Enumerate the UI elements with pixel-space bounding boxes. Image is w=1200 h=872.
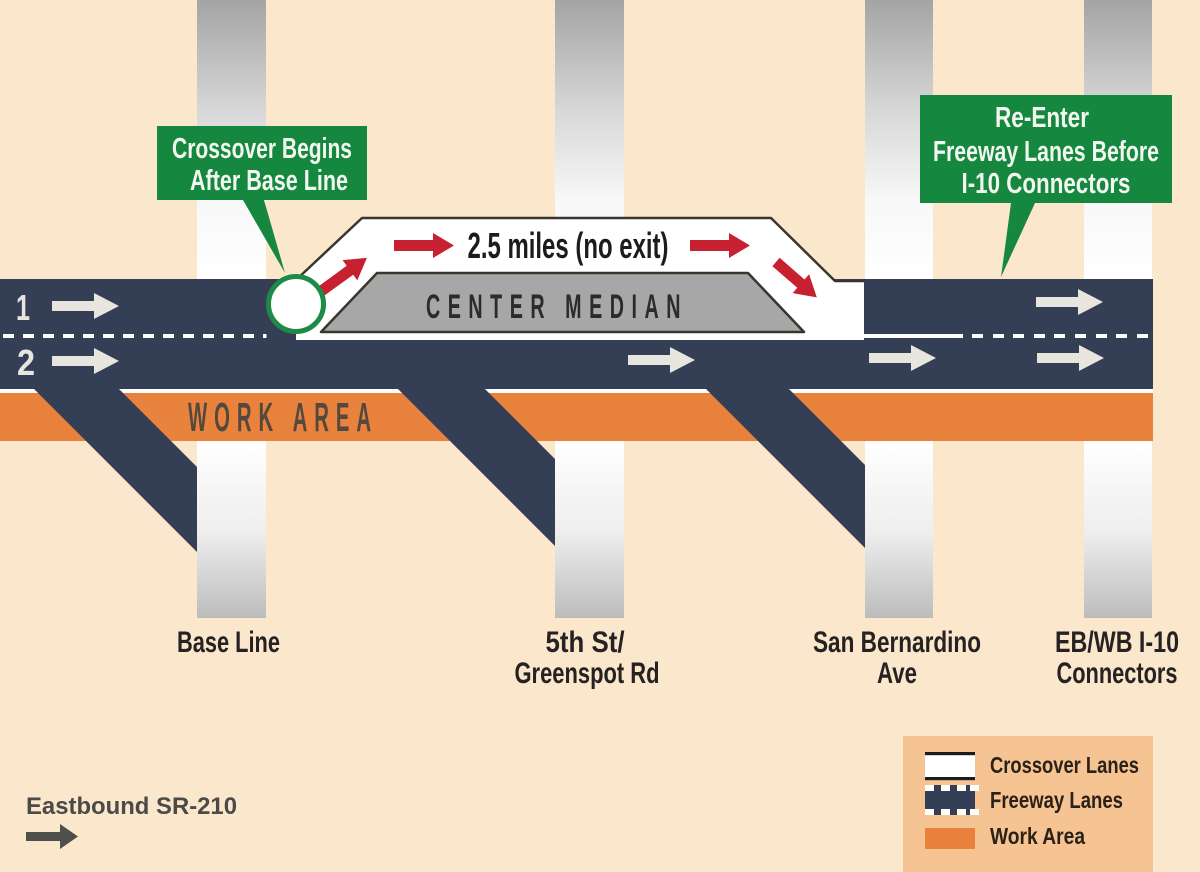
svg-text:CENTER MEDIAN: CENTER MEDIAN: [426, 288, 688, 326]
svg-text:EB/WB I-10: EB/WB I-10: [1055, 626, 1179, 659]
svg-text:I-10 Connectors: I-10 Connectors: [962, 168, 1131, 200]
svg-text:Re-Enter: Re-Enter: [995, 102, 1089, 134]
svg-text:Connectors: Connectors: [1057, 657, 1178, 690]
svg-text:Greenspot Rd: Greenspot Rd: [515, 657, 660, 690]
svg-text:Eastbound SR-210: Eastbound SR-210: [26, 793, 237, 820]
svg-text:Base Line: Base Line: [177, 626, 280, 659]
svg-text:Crossover Lanes: Crossover Lanes: [990, 752, 1139, 778]
svg-text:5th St/: 5th St/: [546, 626, 626, 659]
svg-text:Ave: Ave: [877, 657, 917, 690]
svg-text:2: 2: [17, 342, 35, 383]
svg-text:WORK AREA: WORK AREA: [188, 394, 378, 440]
svg-text:Freeway Lanes: Freeway Lanes: [990, 787, 1123, 813]
svg-text:1: 1: [16, 287, 30, 328]
svg-text:Freeway Lanes Before: Freeway Lanes Before: [933, 136, 1159, 168]
svg-text:2.5 miles (no exit): 2.5 miles (no exit): [468, 225, 669, 266]
svg-text:San Bernardino: San Bernardino: [813, 626, 981, 659]
svg-text:Work Area: Work Area: [990, 823, 1085, 849]
svg-text:After Base Line: After Base Line: [190, 165, 348, 197]
svg-text:Crossover Begins: Crossover Begins: [172, 133, 352, 165]
